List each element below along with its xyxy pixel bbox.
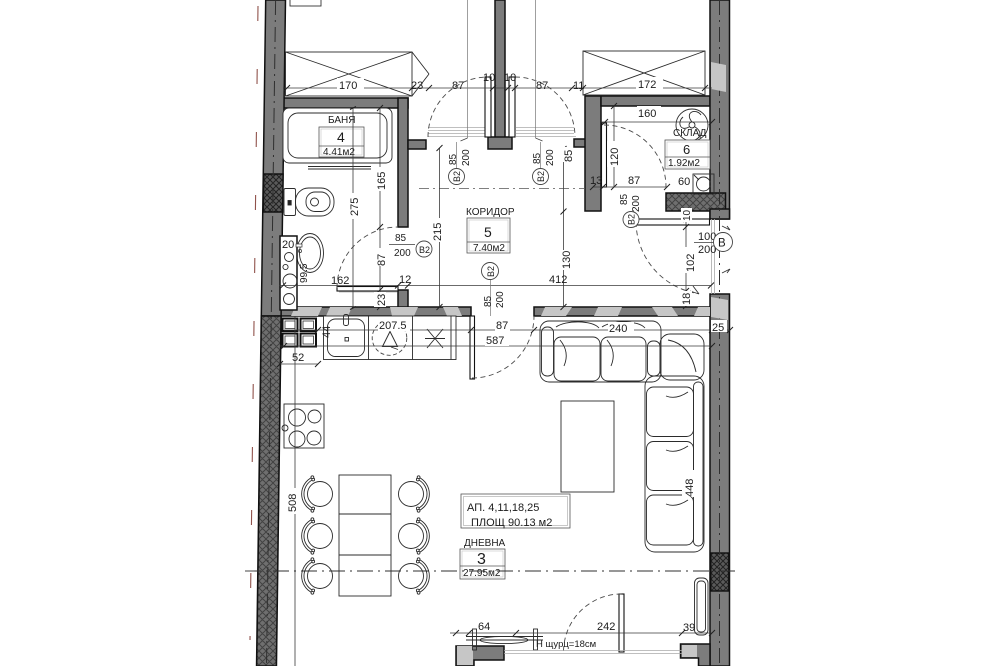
svg-text:В2: В2 [627, 214, 637, 225]
svg-text:10: 10 [682, 209, 693, 221]
svg-text:162: 162 [331, 275, 349, 287]
svg-text:200: 200 [698, 244, 716, 256]
svg-text:7.40м2: 7.40м2 [473, 243, 505, 254]
svg-text:99.5: 99.5 [299, 263, 310, 283]
svg-text:275: 275 [349, 198, 361, 216]
svg-text:102: 102 [685, 254, 697, 272]
svg-text:120: 120 [609, 148, 621, 166]
svg-text:12: 12 [399, 274, 411, 286]
svg-text:85: 85 [395, 233, 407, 244]
svg-text:18: 18 [681, 293, 693, 305]
svg-text:39: 39 [683, 622, 695, 634]
svg-text:4.41м2: 4.41м2 [323, 147, 355, 158]
svg-text:200: 200 [631, 195, 642, 212]
svg-text:В2: В2 [536, 171, 546, 182]
svg-text:13: 13 [590, 175, 602, 187]
svg-text:27.95м2: 27.95м2 [463, 568, 501, 579]
svg-text:В2: В2 [452, 171, 462, 182]
svg-text:85: 85 [448, 153, 459, 165]
svg-text:170: 170 [339, 80, 357, 92]
svg-text:11: 11 [573, 80, 584, 92]
svg-text:1.92м2: 1.92м2 [668, 158, 700, 169]
svg-text:87: 87 [536, 80, 548, 92]
svg-text:87: 87 [628, 175, 640, 187]
svg-text:87: 87 [452, 80, 464, 92]
svg-text:200: 200 [545, 149, 556, 166]
svg-text:4: 4 [337, 129, 345, 145]
svg-text:87: 87 [376, 254, 388, 266]
svg-text:207.5: 207.5 [379, 320, 407, 332]
svg-text:215: 215 [432, 223, 444, 241]
svg-text:44: 44 [321, 326, 333, 338]
svg-text:25: 25 [712, 322, 724, 334]
svg-text:64: 64 [478, 621, 490, 633]
svg-text:165: 165 [376, 172, 388, 190]
svg-text:85: 85 [563, 150, 575, 162]
svg-text:448: 448 [684, 479, 696, 497]
svg-text:АП. 4,11,18,25: АП. 4,11,18,25 [467, 502, 539, 514]
svg-text:КОРИДОР: КОРИДОР [466, 207, 515, 218]
svg-text:85: 85 [619, 193, 630, 205]
svg-text:587: 587 [486, 335, 504, 347]
svg-text:240: 240 [609, 323, 627, 335]
svg-text:СКЛАД: СКЛАД [673, 128, 707, 139]
svg-text:В: В [718, 238, 726, 250]
svg-text:В2: В2 [486, 266, 496, 277]
svg-text:ДНЕВНА: ДНЕВНА [464, 538, 506, 549]
svg-text:130: 130 [561, 251, 573, 269]
svg-text:172: 172 [638, 79, 656, 91]
svg-text:85: 85 [483, 295, 494, 307]
svg-text:10: 10 [483, 72, 495, 84]
svg-text:Н щурц=18см: Н щурц=18см [536, 639, 596, 650]
svg-text:6: 6 [683, 142, 690, 157]
svg-text:ПЛОЩ 90.13 м2: ПЛОЩ 90.13 м2 [471, 517, 552, 529]
svg-text:160: 160 [638, 108, 656, 120]
svg-text:52: 52 [292, 352, 304, 364]
svg-text:200: 200 [461, 149, 472, 166]
svg-text:200: 200 [495, 291, 506, 308]
svg-text:5: 5 [484, 224, 492, 240]
svg-text:242: 242 [597, 621, 615, 633]
svg-text:3: 3 [477, 551, 486, 568]
svg-text:20: 20 [282, 239, 294, 251]
svg-text:60: 60 [678, 176, 690, 188]
svg-text:85: 85 [532, 152, 543, 164]
svg-text:23: 23 [376, 294, 388, 306]
svg-text:В2: В2 [419, 245, 430, 255]
svg-text:200: 200 [394, 248, 411, 259]
svg-text:10: 10 [504, 72, 516, 84]
svg-text:БАНЯ: БАНЯ [328, 115, 355, 126]
svg-text:23: 23 [411, 80, 423, 92]
svg-text:508: 508 [287, 494, 299, 512]
svg-text:87: 87 [496, 320, 508, 332]
svg-text:412: 412 [549, 274, 567, 286]
